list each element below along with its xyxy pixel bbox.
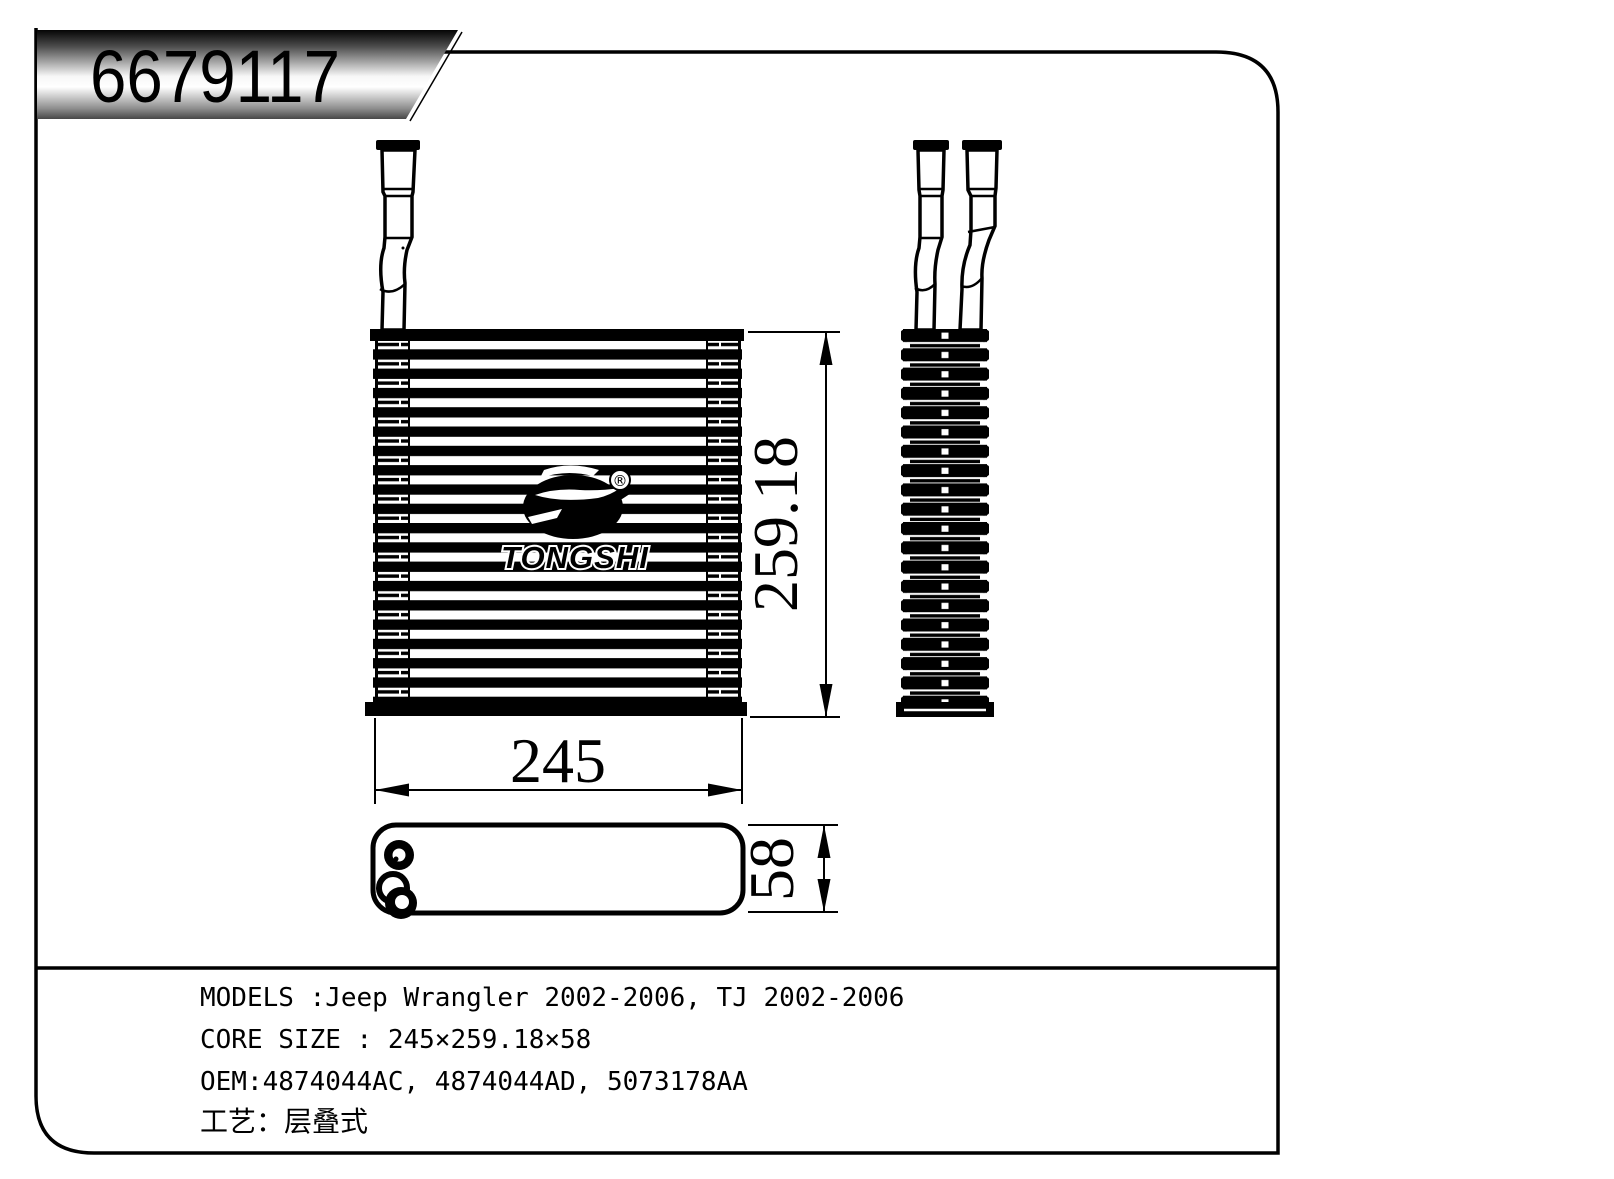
- spec-process: 工艺：层叠式: [200, 1105, 368, 1138]
- pipe-cap: [376, 140, 420, 150]
- core-depth-value: 58: [736, 837, 807, 901]
- core-height-value: 259.18: [740, 436, 811, 612]
- arrow-right-icon: [708, 784, 742, 797]
- side-view: [896, 140, 1002, 717]
- bottom-view: [373, 825, 743, 919]
- core-right-header: [706, 330, 741, 703]
- side-core-stack: [901, 329, 989, 703]
- spec-oem: OEM:4874044AC, 4874044AD, 5073178AA: [200, 1067, 748, 1097]
- pipe-cap: [913, 140, 949, 150]
- spec-block: MODELS :Jeep Wrangler 2002-2006, TJ 2002…: [200, 983, 904, 1138]
- side-core: [896, 329, 994, 717]
- brand-name: TONGSHI: [501, 540, 649, 575]
- arrow-left-icon: [375, 784, 409, 797]
- spec-models: MODELS :Jeep Wrangler 2002-2006, TJ 2002…: [200, 983, 904, 1013]
- fitting-port-top: [384, 840, 414, 870]
- registered-mark: ®: [613, 472, 628, 490]
- arrow-down-icon: [820, 684, 833, 717]
- side-pipe-left: [913, 140, 949, 330]
- front-inlet-pipe: [376, 140, 420, 330]
- logo-emblem: [523, 475, 623, 539]
- dimension-core-height: 259.18: [740, 332, 840, 717]
- arrow-up-icon: [818, 825, 831, 858]
- title-block: 6679117: [37, 30, 462, 121]
- core-top-plate: [370, 329, 744, 341]
- spec-core-size: CORE SIZE : 245×259.18×58: [200, 1025, 591, 1055]
- pipe-cap: [962, 140, 1002, 150]
- core-bottom-plate: [365, 702, 747, 716]
- dimension-core-depth: 58: [736, 825, 838, 912]
- arrow-up-icon: [820, 332, 833, 365]
- bottom-view-outline: [373, 825, 743, 913]
- core-left-header: [375, 330, 410, 703]
- side-pipe-right: [960, 140, 1002, 330]
- arrow-down-icon: [818, 879, 831, 912]
- dimension-core-width: 245: [375, 718, 742, 804]
- core-width-value: 245: [510, 725, 606, 796]
- part-number: 6679117: [90, 35, 340, 118]
- drawing-page: 6679117: [0, 0, 1614, 1179]
- front-view: ® TONGSHI: [365, 140, 747, 716]
